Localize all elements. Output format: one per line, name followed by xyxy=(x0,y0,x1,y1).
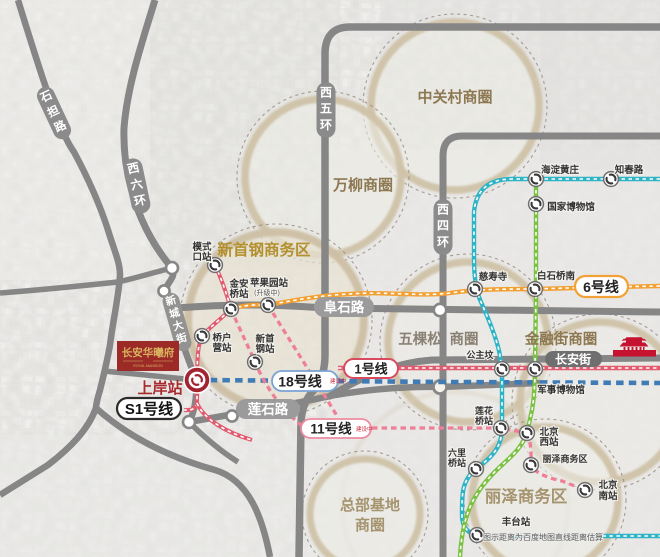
svg-text:长安华曦府: 长安华曦府 xyxy=(122,346,175,359)
svg-text:建设中: 建设中 xyxy=(330,377,347,385)
svg-text:营站: 营站 xyxy=(212,342,232,354)
svg-text:丰台站: 丰台站 xyxy=(502,516,531,528)
svg-text:商圈: 商圈 xyxy=(450,330,479,348)
svg-text:莲石路: 莲石路 xyxy=(248,401,289,417)
svg-text:万柳商圈: 万柳商圈 xyxy=(332,176,393,194)
svg-text:6号线: 6号线 xyxy=(583,279,619,295)
svg-text:丽泽商务区: 丽泽商务区 xyxy=(485,486,568,506)
svg-text:钢站: 钢站 xyxy=(255,343,275,355)
svg-text:建设中: 建设中 xyxy=(356,425,373,433)
svg-text:西: 西 xyxy=(437,203,449,217)
svg-text:桥站: 桥站 xyxy=(448,457,466,468)
svg-text:总部基地: 总部基地 xyxy=(340,496,400,514)
svg-text:S1号线: S1号线 xyxy=(125,400,173,418)
svg-text:阜石路: 阜石路 xyxy=(324,299,365,315)
svg-text:北京: 北京 xyxy=(598,479,618,491)
svg-text:18号线: 18号线 xyxy=(278,374,322,390)
svg-text:公主坟: 公主坟 xyxy=(466,349,494,360)
svg-text:中关村商圈: 中关村商圈 xyxy=(417,88,492,106)
svg-text:桥站: 桥站 xyxy=(229,288,249,300)
svg-text:知春路: 知春路 xyxy=(614,164,644,176)
svg-text:四: 四 xyxy=(437,219,449,233)
svg-text:图示距离为百度地图直线距离估算: 图示距离为百度地图直线距离估算 xyxy=(483,532,603,542)
svg-text:白石桥南: 白石桥南 xyxy=(537,270,576,282)
svg-text:军事博物馆: 军事博物馆 xyxy=(537,384,585,396)
svg-text:苹果园站: 苹果园站 xyxy=(250,277,289,289)
svg-text:桥站: 桥站 xyxy=(475,415,493,426)
svg-text:五棵松: 五棵松 xyxy=(398,330,442,348)
svg-text:西: 西 xyxy=(320,86,332,100)
svg-text:口站: 口站 xyxy=(192,251,212,263)
svg-text:莲花: 莲花 xyxy=(475,405,493,416)
svg-text:国家博物馆: 国家博物馆 xyxy=(547,201,595,213)
svg-text:(升级中): (升级中) xyxy=(254,288,280,297)
svg-text:新首钢商务区: 新首钢商务区 xyxy=(217,240,311,259)
svg-text:商圈: 商圈 xyxy=(355,516,385,534)
svg-text:海淀黄庄: 海淀黄庄 xyxy=(541,164,580,176)
svg-text:ROYAL MANSION: ROYAL MANSION xyxy=(133,364,163,368)
svg-text:金融街商圈: 金融街商圈 xyxy=(524,330,598,348)
svg-text:11号线: 11号线 xyxy=(310,421,352,437)
svg-text:南站: 南站 xyxy=(598,490,618,502)
svg-text:西站: 西站 xyxy=(539,436,559,448)
svg-text:慈寿寺: 慈寿寺 xyxy=(479,271,508,283)
svg-text:1号线: 1号线 xyxy=(354,362,387,377)
svg-text:六里: 六里 xyxy=(448,447,466,458)
svg-text:丽泽商务区: 丽泽商务区 xyxy=(542,453,587,464)
svg-text:长安街: 长安街 xyxy=(555,352,591,367)
svg-text:环: 环 xyxy=(320,118,332,132)
svg-text:五: 五 xyxy=(320,102,332,116)
svg-text:环: 环 xyxy=(437,235,449,249)
svg-text:上岸站: 上岸站 xyxy=(137,379,182,397)
